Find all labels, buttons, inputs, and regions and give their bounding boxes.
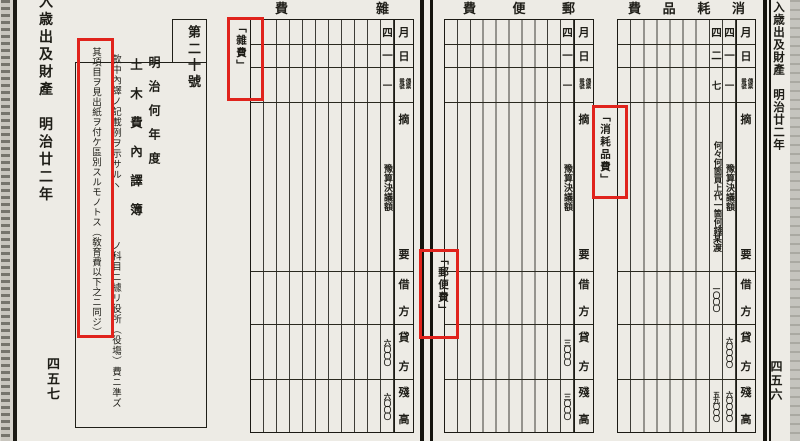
ledger-entry: 四 一 一 豫算決議額 六〇〇〇〇 六〇〇〇〇 <box>723 20 736 432</box>
entry-month: 四 <box>381 20 394 44</box>
header-month: 月 <box>575 20 593 44</box>
header-day: 日 <box>395 44 413 67</box>
highlight-box-note <box>77 38 114 338</box>
column-header-strip: 月 日 傳票番號 摘要 借方 貸方 殘高 <box>574 20 593 432</box>
left-page-number: 四五七 <box>42 357 61 402</box>
header-balance: 殘高 <box>737 379 755 432</box>
header-balance: 殘高 <box>395 379 413 432</box>
form-title: 土木費內譯簿 <box>126 58 145 232</box>
header-day: 日 <box>575 44 593 67</box>
ledger-entry: 四 一 一 豫算決議額 三〇〇〇 三〇〇〇 <box>561 20 574 432</box>
index-tab-yubin: 「郵便費」 <box>436 254 451 317</box>
entry-month: 四 <box>561 20 574 44</box>
ledger-table-yubin: 郵便費 「郵便費」 月 日 傳票番號 摘要 借方 貸方 殘高 四 一 一 豫算決… <box>444 19 594 433</box>
header-voucher-no: 傳票番號 <box>737 67 755 102</box>
header-credit: 貸方 <box>395 324 413 379</box>
entry-balance: 六〇〇〇〇 <box>723 379 736 432</box>
table-title: 消耗品費 <box>618 1 755 18</box>
right-page-bleed <box>790 0 800 441</box>
entry-balance: 六〇〇〇 <box>381 379 394 432</box>
entry-voucher: 一 <box>561 67 574 102</box>
column-header-strip: 月 日 傳票番號 摘要 借方 貸方 殘高 <box>394 20 413 432</box>
entry-voucher: 七 <box>710 67 723 102</box>
entry-month: 四 <box>723 20 736 44</box>
table-title: 郵便費 <box>445 1 593 18</box>
ledger-entry: 四 二 七 何々何箇買上代一箇何錢 某渡 一〇〇〇 五九〇〇〇 <box>710 20 723 432</box>
header-month: 月 <box>395 20 413 44</box>
scanned-ledger-spread: 入歳出及財產 明治廿二年 四五七 入歳出及財產 明治廿二年 四五六 第二十號 明… <box>0 0 800 441</box>
column-header-strip: 月 日 傳票番號 摘要 借方 貸方 殘高 <box>736 20 755 432</box>
ledger-entry: 四 一 一 豫算決議額 六〇〇〇 六〇〇〇 <box>381 20 394 432</box>
header-description: 摘要 <box>395 102 413 271</box>
entry-credit: 六〇〇〇〇 <box>723 324 736 379</box>
index-tab-zappi: 「雜費」 <box>234 22 249 72</box>
entry-balance: 三〇〇〇 <box>561 379 574 432</box>
header-credit: 貸方 <box>737 324 755 379</box>
entry-day: 一 <box>723 44 736 67</box>
entry-day: 一 <box>561 44 574 67</box>
header-month: 月 <box>737 20 755 44</box>
ledger-grid-columns <box>251 20 394 432</box>
book-gutter-rule <box>420 0 433 441</box>
left-page-edge-rule <box>13 0 17 441</box>
header-credit: 貸方 <box>575 324 593 379</box>
entry-day: 一 <box>381 44 394 67</box>
left-page-bleed <box>0 0 13 441</box>
header-voucher-no: 傳票番號 <box>395 67 413 102</box>
index-tab-shomohin: 「消耗品費」 <box>598 111 613 186</box>
left-margin-running-title: 入歳出及財產 明治廿二年 <box>35 0 55 204</box>
entry-credit: 三〇〇〇 <box>561 324 574 379</box>
entry-voucher: 一 <box>723 67 736 102</box>
header-debit: 借方 <box>575 271 593 324</box>
header-description: 摘要 <box>737 102 755 271</box>
entry-day: 二 <box>710 44 723 67</box>
ledger-table-zappi: 雜費 「雜費」 月 日 傳票番號 摘要 借方 貸方 殘高 四 一 一 豫算決議額… <box>250 19 414 433</box>
entry-description: 豫算決議額 <box>381 104 394 272</box>
header-debit: 借方 <box>395 271 413 324</box>
entry-description-payee: 某渡 <box>710 234 723 252</box>
entry-credit: 六〇〇〇 <box>381 324 394 379</box>
header-description: 摘要 <box>575 102 593 271</box>
entry-debit: 一〇〇〇 <box>710 271 723 324</box>
entry-description: 豫算決議額 <box>561 104 574 272</box>
form-number: 第二十號 <box>183 25 202 91</box>
header-balance: 殘高 <box>575 379 593 432</box>
ledger-table-shomohin: 消耗品費 「消耗品費」 月 日 傳票番號 摘要 借方 貸方 殘高 四 一 一 豫… <box>617 19 756 433</box>
header-day: 日 <box>737 44 755 67</box>
fiscal-year: 明治何年度 <box>146 56 163 176</box>
header-debit: 借方 <box>737 271 755 324</box>
entry-description: 豫算決議額 <box>723 104 736 272</box>
entry-month: 四 <box>710 20 723 44</box>
header-voucher-no: 傳票番號 <box>575 67 593 102</box>
table-title: 雜費 <box>251 1 413 18</box>
entry-balance: 五九〇〇〇 <box>710 379 723 432</box>
entry-voucher: 一 <box>381 67 394 102</box>
right-margin-running-title: 入歳出及財產 明治廿二年 <box>771 1 787 151</box>
right-page-number: 四五六 <box>768 360 785 402</box>
ledger-grid-columns <box>445 20 574 432</box>
